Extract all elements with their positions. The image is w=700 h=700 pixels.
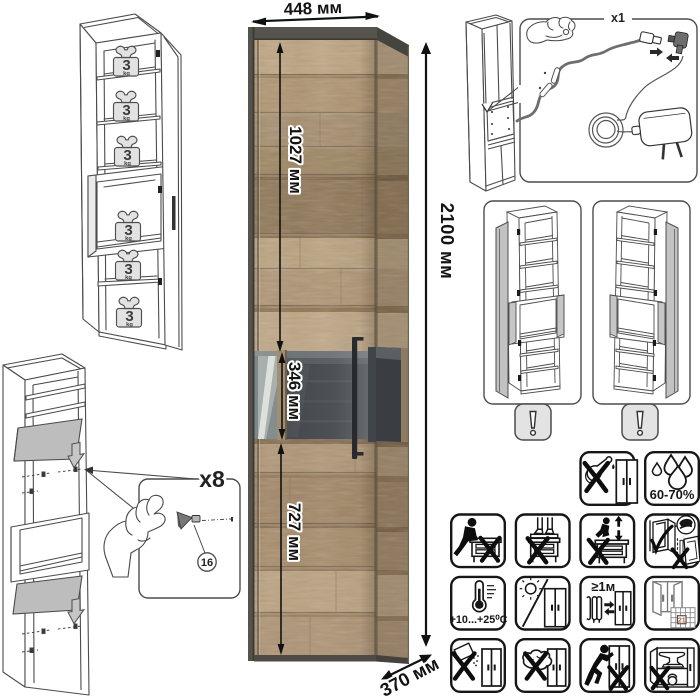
svg-text:16: 16 xyxy=(201,557,213,569)
svg-text:1027 мм: 1027 мм xyxy=(286,126,305,194)
svg-text:x1: x1 xyxy=(611,11,625,25)
svg-text:727 мм: 727 мм xyxy=(285,503,304,561)
svg-text:21: 21 xyxy=(678,618,686,625)
svg-text:2100 мм: 2100 мм xyxy=(437,203,458,279)
svg-text:60-70%: 60-70% xyxy=(650,487,695,502)
svg-text:448 мм: 448 мм xyxy=(284,0,343,19)
svg-text:x8: x8 xyxy=(199,466,225,492)
svg-text:≥1м: ≥1м xyxy=(591,579,615,594)
svg-text:346 мм: 346 мм xyxy=(285,362,304,420)
svg-text:+10...+25⁰C: +10...+25⁰C xyxy=(450,614,508,626)
